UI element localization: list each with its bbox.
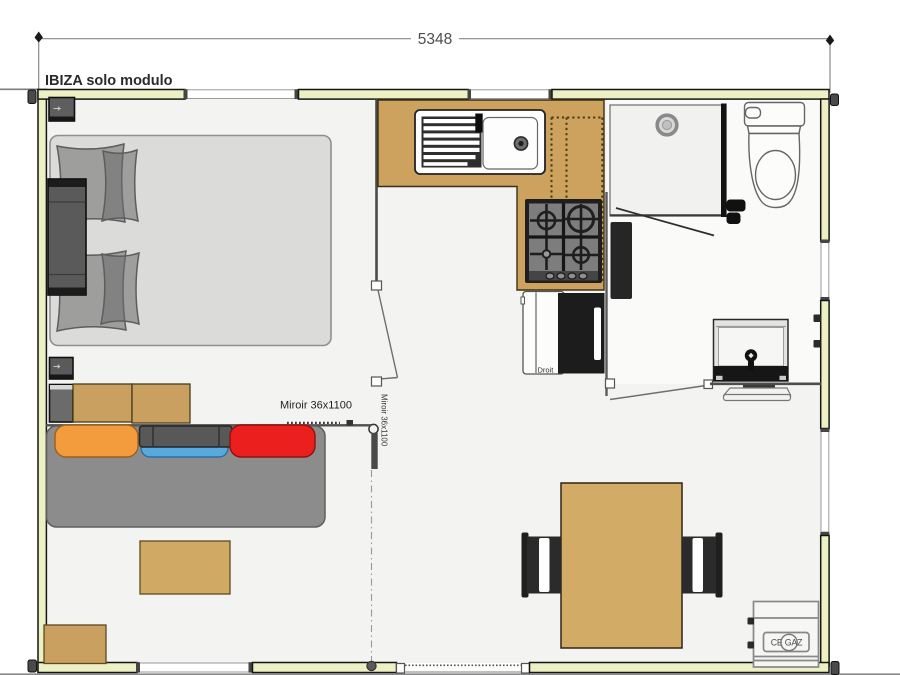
svg-text:CE GAZ: CE GAZ [771, 638, 803, 648]
svg-text:5348: 5348 [418, 31, 452, 48]
svg-text:Miroir 36x1100: Miroir 36x1100 [380, 394, 389, 447]
svg-text:Droit: Droit [538, 366, 555, 375]
svg-text:Miroir 36x1100: Miroir 36x1100 [280, 400, 352, 412]
svg-text:IBIZA solo modulo: IBIZA solo modulo [45, 73, 173, 89]
